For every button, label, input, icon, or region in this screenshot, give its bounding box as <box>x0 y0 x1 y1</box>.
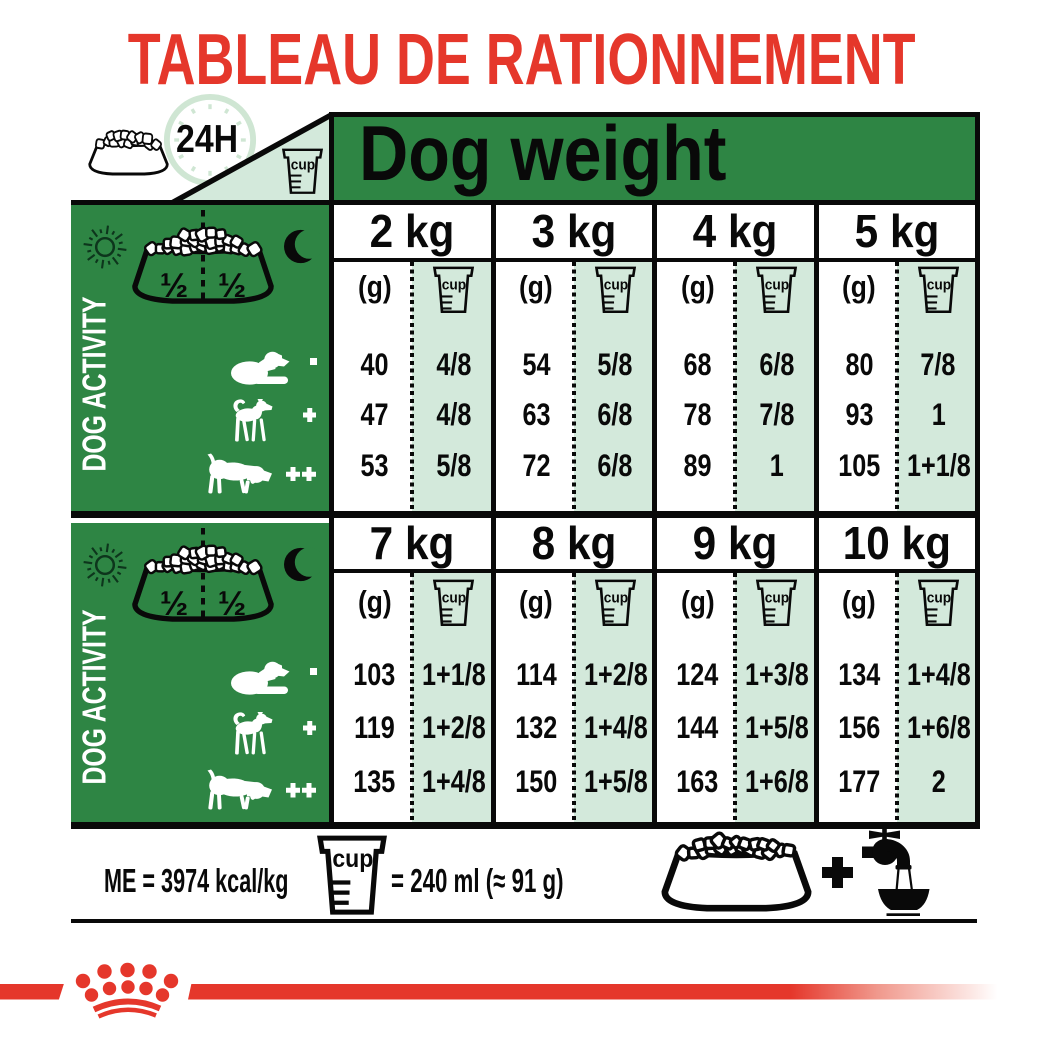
svg-text:cup: cup <box>765 277 789 294</box>
svg-text:cup: cup <box>442 590 466 607</box>
svg-text:cup: cup <box>332 845 373 872</box>
svg-text:cup: cup <box>765 590 789 607</box>
svg-text:cup: cup <box>927 277 951 294</box>
svg-text:cup: cup <box>291 157 315 173</box>
svg-text:cup: cup <box>442 277 466 294</box>
svg-text:cup: cup <box>604 590 628 607</box>
svg-text:cup: cup <box>604 277 628 294</box>
svg-text:cup: cup <box>927 590 951 607</box>
